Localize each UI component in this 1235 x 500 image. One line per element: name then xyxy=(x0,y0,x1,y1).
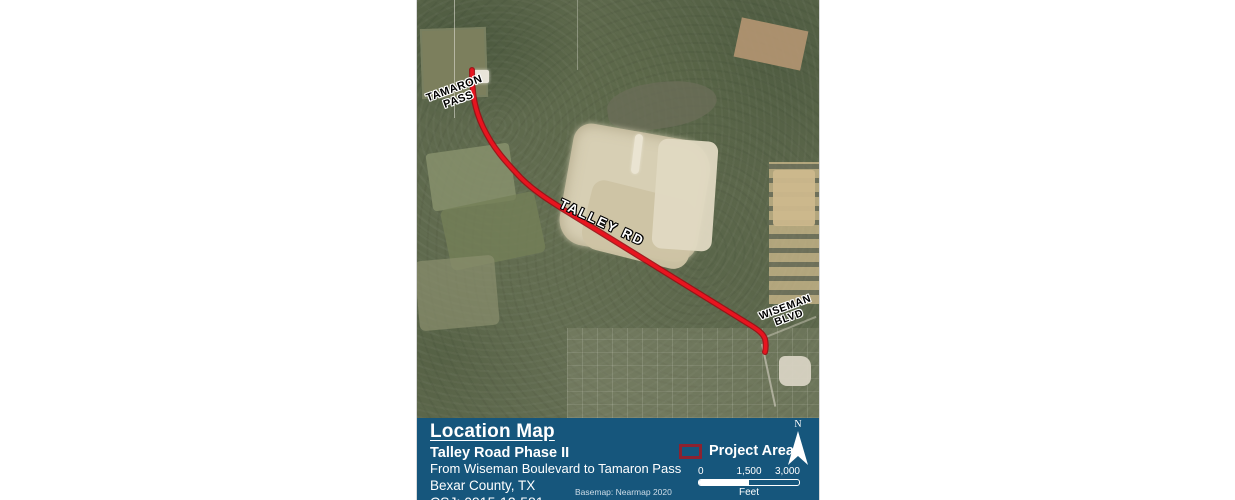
scale-bar: 0 1,500 3,000 Feet xyxy=(698,466,800,498)
scale-labels: 0 1,500 3,000 xyxy=(698,466,800,478)
project-area-swatch-icon xyxy=(679,444,702,459)
north-arrow-label: N xyxy=(785,419,811,430)
north-arrow-icon xyxy=(786,430,810,468)
page: TAMARON PASS TALLEY RD WISEMAN BLVD Loca… xyxy=(0,0,1235,500)
scale-tick-max: 3,000 xyxy=(775,466,800,477)
project-limits: From Wiseman Boulevard to Tamaron Pass xyxy=(430,461,681,476)
map-title-block: Location Map Talley Road Phase II From W… xyxy=(417,418,819,500)
satellite-basemap: TAMARON PASS TALLEY RD WISEMAN BLVD xyxy=(417,0,819,418)
legend: Project Area xyxy=(679,443,794,459)
map-title: Location Map xyxy=(430,421,681,443)
scale-unit: Feet xyxy=(698,487,800,498)
legend-label: Project Area xyxy=(709,443,794,459)
project-route-highlight xyxy=(417,0,819,418)
route-casing xyxy=(472,70,766,352)
basemap-credit: Basemap: Nearmap 2020 xyxy=(575,487,672,497)
location-map-document: TAMARON PASS TALLEY RD WISEMAN BLVD Loca… xyxy=(417,0,819,500)
scale-tick-0: 0 xyxy=(698,466,704,477)
scale-segment-filled xyxy=(699,480,749,485)
scale-track xyxy=(698,479,800,486)
scale-segment-hollow xyxy=(749,480,799,485)
north-arrow: N xyxy=(785,419,811,473)
project-name: Talley Road Phase II xyxy=(430,445,681,461)
scale-tick-mid: 1,500 xyxy=(736,466,761,477)
